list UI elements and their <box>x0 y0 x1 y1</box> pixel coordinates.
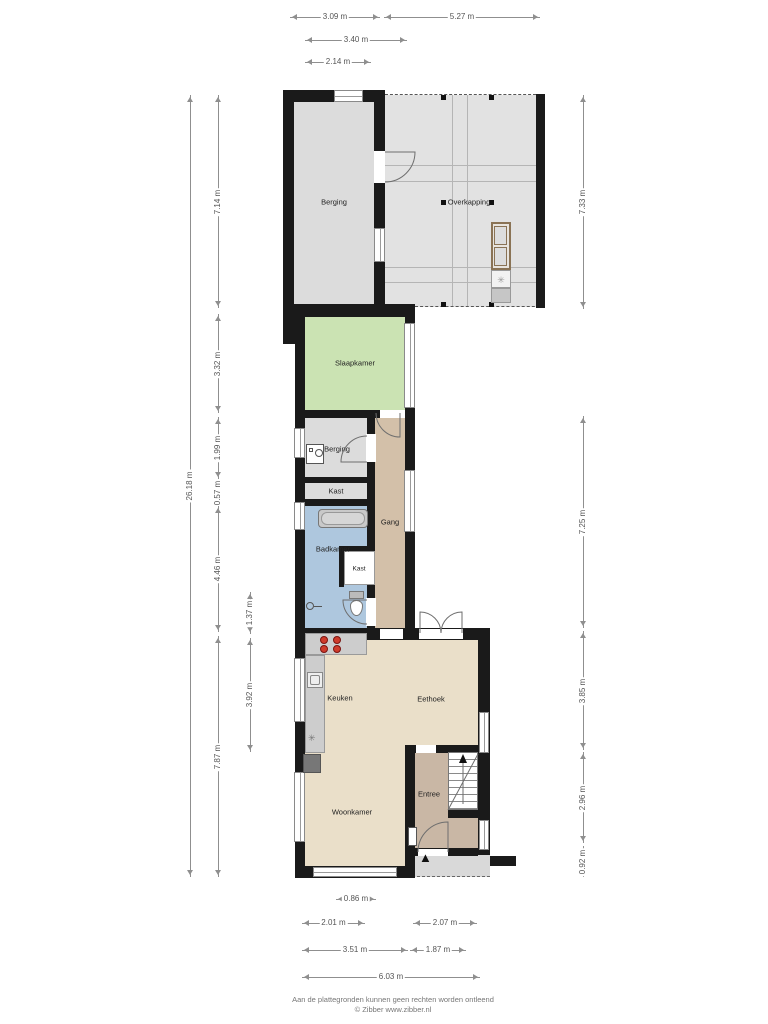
wall <box>295 304 415 317</box>
washing-machine-icon <box>306 444 324 464</box>
canopy-post <box>441 95 446 100</box>
dim-top-309: 3.09 m <box>290 11 380 23</box>
wall <box>300 477 370 483</box>
dim-left-787: 7.87 m <box>212 636 224 877</box>
bathtub-inner <box>321 512 365 525</box>
roof-line <box>385 282 536 283</box>
dim-left-332: 3.32 m <box>212 314 224 413</box>
dim-left-714: 7.14 m <box>212 95 224 308</box>
stove-burner-icon <box>320 636 328 644</box>
room-label-gang: Gang <box>381 518 399 527</box>
window <box>374 228 385 262</box>
bathtub <box>318 509 368 528</box>
room-label-slaapkamer: Slaapkamer <box>335 359 375 368</box>
kitchen-sink <box>307 672 323 688</box>
dim-right-385: 3.85 m <box>577 631 589 750</box>
dim-left-2618: 26.18 m <box>184 95 196 877</box>
hob-icon: ✳ <box>308 734 316 743</box>
dim-right-733: 7.33 m <box>577 95 589 309</box>
entrance-marker-icon: ▲ <box>419 851 432 864</box>
room-label-kast-upper: Kast <box>328 487 343 496</box>
window <box>313 867 397 877</box>
room-label-badkamer: Badkamer <box>316 545 350 554</box>
shower-arm-icon <box>314 606 322 607</box>
door-gap <box>380 629 403 639</box>
room-label-woonkamer: Woonkamer <box>332 808 372 817</box>
shower-head-icon <box>306 602 314 610</box>
room-label-overkapping: Overkapping <box>448 198 491 207</box>
room-label-berging-top: Berging <box>321 198 347 207</box>
dim-left-199: 1.99 m <box>212 417 224 479</box>
roof-line <box>385 165 536 166</box>
window <box>404 323 415 408</box>
wall <box>374 90 385 316</box>
window <box>404 470 415 532</box>
wall <box>490 856 516 866</box>
door-gap <box>366 434 376 462</box>
dim-bottom-187: 1.87 m <box>410 944 466 956</box>
dim-right-092: 0.92 m <box>577 846 589 877</box>
meter-cabinet <box>408 827 417 846</box>
door-gap <box>416 745 436 753</box>
roof-line <box>385 181 536 182</box>
wall <box>448 810 478 818</box>
appliance-door <box>494 247 507 266</box>
window <box>294 772 305 842</box>
appliance-door <box>494 226 507 245</box>
dim-bottom-351: 3.51 m <box>302 944 408 956</box>
canopy-appliance-cabinet <box>491 222 511 270</box>
washing-machine-detergent <box>309 448 313 452</box>
canopy-post <box>441 302 446 307</box>
canopy-edge-top <box>385 94 536 95</box>
dim-left-057: 0.57 m <box>212 482 224 503</box>
canopy-edge-bottom <box>415 306 545 307</box>
canopy-post <box>489 95 494 100</box>
dim-bottom-201: 2.01 m <box>302 917 365 929</box>
roof-line <box>385 267 536 268</box>
room-label-eethoek: Eethoek <box>417 695 445 704</box>
dim-top-340: 3.40 m <box>305 34 407 46</box>
stove-burner-icon <box>320 645 328 653</box>
window <box>294 658 305 722</box>
dim-right-296: 2.96 m <box>577 752 589 843</box>
dim-bottom-603: 6.03 m <box>302 971 480 983</box>
wall <box>536 94 545 308</box>
canopy-post <box>441 200 446 205</box>
room-label-keuken: Keuken <box>327 694 352 703</box>
staircase <box>448 752 478 810</box>
kitchen-counter-top <box>305 633 367 655</box>
window <box>294 502 305 530</box>
canopy-base-unit <box>491 288 511 303</box>
window <box>334 90 363 102</box>
door-gap <box>380 410 405 418</box>
footer-disclaimer: Aan de plattegronden kunnen geen rechten… <box>193 995 593 1015</box>
footer-line-1: Aan de plattegronden kunnen geen rechten… <box>193 995 593 1005</box>
toilet-tank <box>349 591 364 599</box>
dim-bottom-086: 0.86 m <box>336 893 376 905</box>
dim-left-392: 3.92 m <box>244 638 256 752</box>
stove-burner-icon <box>333 645 341 653</box>
window <box>294 428 305 458</box>
dim-right-725: 7.25 m <box>577 416 589 628</box>
floorplan-canvas: ✳ ✳ ▲ Berging Overkapping Slaapkamer Ber… <box>0 0 768 1024</box>
stove-burner-icon <box>333 636 341 644</box>
dim-bottom-207: 2.07 m <box>413 917 477 929</box>
room-label-kast-lower: Kast <box>352 566 365 573</box>
wall <box>283 90 294 316</box>
dim-top-214: 2.14 m <box>305 56 371 68</box>
dim-top-527: 5.27 m <box>384 11 540 23</box>
footer-line-2: © Zibber www.zibber.nl <box>193 1005 593 1015</box>
room-label-berging-small: Berging <box>324 445 350 454</box>
dim-left-137: 1.37 m <box>244 592 256 634</box>
door-gap <box>366 598 376 626</box>
kitchen-cabinet-dark <box>303 754 321 773</box>
dim-left-446: 4.46 m <box>212 506 224 632</box>
window <box>479 712 489 753</box>
kitchen-sink-basin <box>310 675 320 685</box>
double-door-gap <box>419 629 463 639</box>
washing-machine-drum <box>315 449 323 457</box>
room-label-entree: Entree <box>418 790 440 799</box>
wall <box>300 499 370 506</box>
door-gap <box>374 151 385 183</box>
canopy-hob-unit: ✳ <box>491 270 511 288</box>
window <box>479 820 489 850</box>
